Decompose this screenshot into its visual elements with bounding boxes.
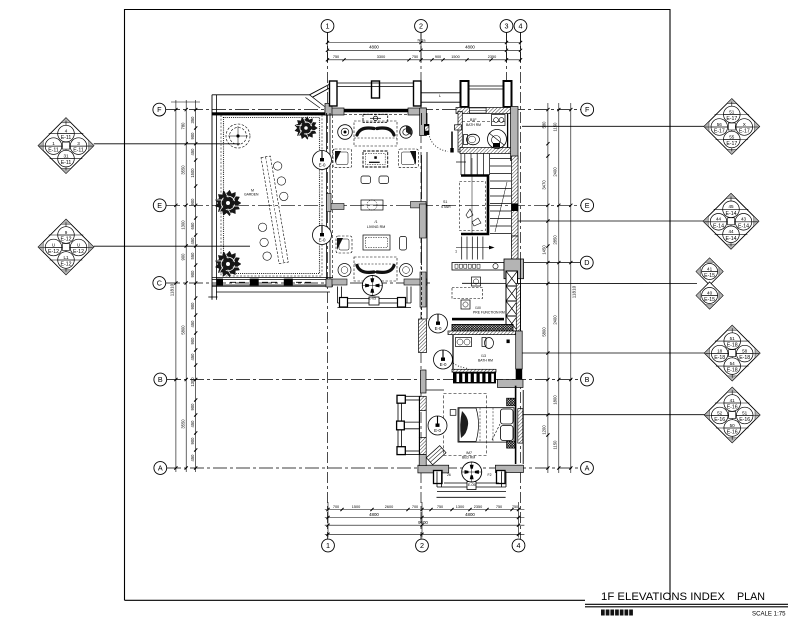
svg-text:4800: 4800 xyxy=(465,512,475,517)
svg-text:40: 40 xyxy=(707,290,713,295)
svg-text:E-14: E-14 xyxy=(738,223,749,229)
svg-text:3550: 3550 xyxy=(180,165,185,175)
svg-text:B1F: B1F xyxy=(470,118,477,122)
svg-text:STAIR: STAIR xyxy=(441,205,451,209)
svg-text:U: U xyxy=(52,242,55,247)
svg-text:E-05: E-05 xyxy=(369,297,377,301)
svg-text:E-16: E-16 xyxy=(727,430,738,436)
svg-text:41: 41 xyxy=(730,398,736,403)
svg-text:E-15: E-15 xyxy=(704,273,715,279)
svg-text:11810: 11810 xyxy=(572,285,577,298)
svg-text:50: 50 xyxy=(730,423,736,428)
svg-text:F: F xyxy=(157,105,162,114)
svg-text:L: L xyxy=(439,94,441,98)
svg-text:750: 750 xyxy=(333,55,339,59)
svg-text:450: 450 xyxy=(190,148,195,156)
svg-text:11810: 11810 xyxy=(170,283,175,296)
svg-text:750: 750 xyxy=(412,55,418,59)
svg-text:E-0: E-0 xyxy=(440,362,447,367)
svg-text:E-11: E-11 xyxy=(48,148,59,154)
svg-text:450: 450 xyxy=(190,320,195,328)
svg-text:E-14: E-14 xyxy=(726,236,737,242)
svg-text:E-18: E-18 xyxy=(727,343,738,349)
svg-text:18: 18 xyxy=(717,348,723,353)
svg-text:D: D xyxy=(584,258,589,267)
svg-text:2: 2 xyxy=(419,22,423,31)
svg-text:F2: F2 xyxy=(488,473,492,477)
svg-text:1500: 1500 xyxy=(451,55,459,59)
svg-text:41: 41 xyxy=(707,266,713,271)
svg-text:900: 900 xyxy=(190,437,195,445)
svg-text:51: 51 xyxy=(742,410,748,415)
svg-text:450: 450 xyxy=(190,353,195,361)
svg-text:54: 54 xyxy=(730,361,736,366)
svg-text:350: 350 xyxy=(190,116,195,124)
svg-text:/13: /13 xyxy=(481,354,486,358)
svg-text:3470: 3470 xyxy=(542,180,547,190)
svg-text:PRE FUNCTION RM: PRE FUNCTION RM xyxy=(473,311,505,315)
svg-text:1500: 1500 xyxy=(352,505,360,509)
svg-text:3300: 3300 xyxy=(377,55,385,59)
svg-text:26: 26 xyxy=(447,473,451,477)
svg-text:900: 900 xyxy=(190,270,195,278)
svg-text:E-05: E-05 xyxy=(468,483,476,487)
svg-text:E-17: E-17 xyxy=(739,129,750,135)
svg-text:PLAN: PLAN xyxy=(737,591,765,603)
svg-text:S1: S1 xyxy=(443,200,447,204)
svg-text:C: C xyxy=(157,279,162,288)
svg-text:E-15: E-15 xyxy=(704,297,715,303)
svg-text:450: 450 xyxy=(190,237,195,245)
svg-text:E-18: E-18 xyxy=(714,355,725,361)
svg-text:1150: 1150 xyxy=(553,440,558,450)
svg-text:650: 650 xyxy=(190,222,195,230)
svg-text:E-0: E-0 xyxy=(319,238,326,243)
svg-text:700: 700 xyxy=(333,505,339,509)
svg-text:E-12: E-12 xyxy=(61,237,72,243)
svg-text:A: A xyxy=(158,464,163,473)
svg-text:45: 45 xyxy=(728,204,734,209)
svg-text:450: 450 xyxy=(190,454,195,462)
svg-text:LIVING RM: LIVING RM xyxy=(367,225,385,229)
svg-text:2400: 2400 xyxy=(553,315,558,325)
svg-text:3550: 3550 xyxy=(180,419,185,429)
svg-text:1300: 1300 xyxy=(190,377,195,387)
svg-text:900: 900 xyxy=(190,337,195,345)
svg-text:2: 2 xyxy=(420,541,424,550)
svg-text:E-14: E-14 xyxy=(726,211,737,217)
svg-text:B: B xyxy=(585,375,590,384)
svg-text:900: 900 xyxy=(190,302,195,310)
svg-text:580: 580 xyxy=(542,121,547,129)
svg-text:3: 3 xyxy=(505,22,509,31)
svg-text:1800: 1800 xyxy=(553,395,558,405)
svg-text:4800: 4800 xyxy=(369,512,379,517)
svg-text:4: 4 xyxy=(517,541,521,550)
svg-text:450: 450 xyxy=(190,420,195,428)
svg-text:4800: 4800 xyxy=(465,45,475,50)
svg-text:900: 900 xyxy=(180,253,185,261)
svg-text:E-0: E-0 xyxy=(319,163,326,168)
svg-text:BATH RM: BATH RM xyxy=(466,123,481,127)
svg-text:900: 900 xyxy=(435,55,441,59)
svg-text:E-12: E-12 xyxy=(48,249,59,255)
svg-text:L1: L1 xyxy=(63,255,69,260)
svg-text:1: 1 xyxy=(455,250,457,254)
svg-text:E-12: E-12 xyxy=(73,249,84,255)
svg-text:900: 900 xyxy=(190,132,195,140)
svg-text:/1: /1 xyxy=(375,220,378,224)
svg-text:900: 900 xyxy=(190,403,195,411)
svg-text:550: 550 xyxy=(190,252,195,260)
svg-text:BED RM: BED RM xyxy=(462,456,475,460)
svg-text:1450: 1450 xyxy=(542,245,547,255)
svg-text:2350: 2350 xyxy=(474,505,482,509)
svg-text:700: 700 xyxy=(412,505,418,509)
svg-text:43: 43 xyxy=(741,217,747,222)
svg-text:E-18: E-18 xyxy=(739,355,750,361)
svg-text:1: 1 xyxy=(326,541,330,550)
svg-text:51: 51 xyxy=(729,109,735,114)
svg-text:4: 4 xyxy=(65,128,68,133)
svg-text:750: 750 xyxy=(512,505,518,509)
svg-text:E: E xyxy=(157,201,162,210)
svg-text:U: U xyxy=(77,242,80,247)
svg-text:1500: 1500 xyxy=(190,168,195,178)
svg-text:E-11: E-11 xyxy=(61,135,72,141)
svg-text:750: 750 xyxy=(496,505,502,509)
svg-text:E-14: E-14 xyxy=(713,223,724,229)
svg-text:2600: 2600 xyxy=(385,505,393,509)
svg-text:9: 9 xyxy=(65,230,68,235)
svg-text:1300: 1300 xyxy=(180,220,185,230)
svg-text:E: E xyxy=(585,201,590,210)
svg-text:N.2a: N.2a xyxy=(417,38,426,42)
svg-text:E-17: E-17 xyxy=(726,116,737,122)
svg-text:780: 780 xyxy=(180,122,185,130)
svg-text:E-16: E-16 xyxy=(727,405,738,411)
svg-text:E-0: E-0 xyxy=(435,326,442,331)
svg-text:X: X xyxy=(743,122,746,127)
svg-text:2850: 2850 xyxy=(553,235,558,245)
svg-text:4800: 4800 xyxy=(369,45,379,50)
svg-text:58: 58 xyxy=(742,348,748,353)
svg-text:5800: 5800 xyxy=(180,325,185,335)
svg-text:E-17: E-17 xyxy=(714,129,725,135)
svg-text:E-16: E-16 xyxy=(739,417,750,423)
svg-text:5800: 5800 xyxy=(542,327,547,337)
svg-text:E-18: E-18 xyxy=(727,368,738,374)
svg-text:44: 44 xyxy=(728,229,734,234)
svg-text:A: A xyxy=(585,464,590,473)
svg-text:2400: 2400 xyxy=(553,167,558,177)
svg-text:/M7: /M7 xyxy=(466,451,472,455)
svg-text:51: 51 xyxy=(730,336,736,341)
svg-text:E-0: E-0 xyxy=(434,428,441,433)
svg-text:4: 4 xyxy=(519,22,523,31)
svg-text:SCALE 1:75: SCALE 1:75 xyxy=(752,611,786,618)
svg-text:E-11: E-11 xyxy=(61,160,72,166)
svg-text:55: 55 xyxy=(729,134,735,139)
svg-text:1: 1 xyxy=(326,22,330,31)
svg-text:750: 750 xyxy=(437,505,443,509)
svg-text:900: 900 xyxy=(190,198,195,206)
svg-text:B: B xyxy=(158,375,163,384)
svg-text:31: 31 xyxy=(63,153,69,158)
svg-text:1300: 1300 xyxy=(456,505,464,509)
svg-text:/10/: /10/ xyxy=(475,306,481,310)
svg-text:44: 44 xyxy=(716,217,722,222)
svg-text:E-16: E-16 xyxy=(714,417,725,423)
svg-text:GARDEN: GARDEN xyxy=(244,193,259,197)
svg-text:1: 1 xyxy=(52,141,55,146)
svg-text:2350: 2350 xyxy=(488,55,496,59)
svg-text:1200: 1200 xyxy=(542,425,547,435)
svg-text:BATH RM: BATH RM xyxy=(478,359,493,363)
svg-text:F: F xyxy=(585,105,590,114)
svg-text:E-11: E-11 xyxy=(73,148,84,154)
svg-text:1F ELEVATIONS INDEX: 1F ELEVATIONS INDEX xyxy=(601,591,726,603)
svg-text:3: 3 xyxy=(77,141,80,146)
svg-text:56: 56 xyxy=(717,122,723,127)
svg-text:9600: 9600 xyxy=(418,520,428,525)
svg-text:E-12: E-12 xyxy=(61,262,72,268)
svg-text:E-17: E-17 xyxy=(726,141,737,147)
svg-text:52: 52 xyxy=(717,410,723,415)
